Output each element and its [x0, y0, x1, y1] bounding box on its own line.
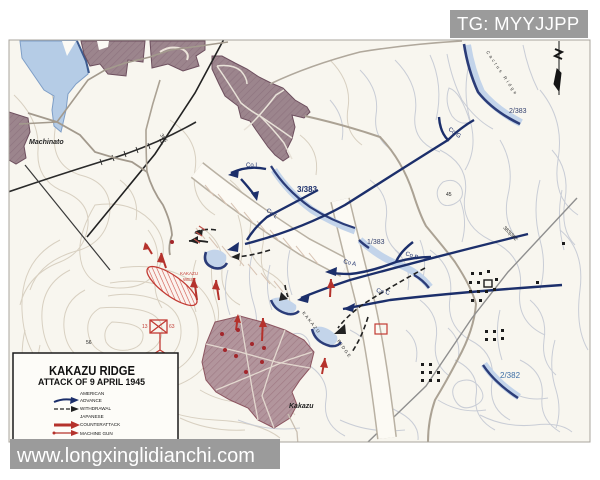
svg-text:Machinato: Machinato: [29, 139, 64, 146]
svg-text:2/383: 2/383: [509, 108, 527, 115]
svg-text:Co I: Co I: [246, 163, 257, 169]
svg-text:Kakazu: Kakazu: [289, 403, 314, 410]
svg-text:COUNTERATTACK: COUNTERATTACK: [80, 422, 121, 427]
svg-text:2/382: 2/382: [500, 371, 521, 380]
svg-text:ADVANCE: ADVANCE: [80, 398, 102, 403]
svg-text:WITHDRAWAL: WITHDRAWAL: [80, 406, 111, 411]
svg-text:3/383: 3/383: [297, 185, 318, 194]
svg-text:ATTACK OF 9 APRIL 1945: ATTACK OF 9 APRIL 1945: [38, 377, 145, 387]
svg-text:13: 13: [142, 324, 148, 330]
svg-text:KAKAZU: KAKAZU: [180, 271, 198, 276]
svg-text:MACHINE GUN: MACHINE GUN: [80, 431, 113, 436]
svg-text:WEST: WEST: [183, 277, 196, 282]
svg-text:AMERICAN: AMERICAN: [80, 391, 104, 396]
svg-text:56: 56: [86, 340, 92, 346]
svg-text:1/383: 1/383: [367, 239, 385, 246]
svg-text:63: 63: [169, 324, 175, 330]
svg-text:45: 45: [446, 192, 452, 198]
svg-text:KAKAZU RIDGE: KAKAZU RIDGE: [49, 364, 135, 378]
svg-text:JAPANESE: JAPANESE: [80, 414, 104, 419]
